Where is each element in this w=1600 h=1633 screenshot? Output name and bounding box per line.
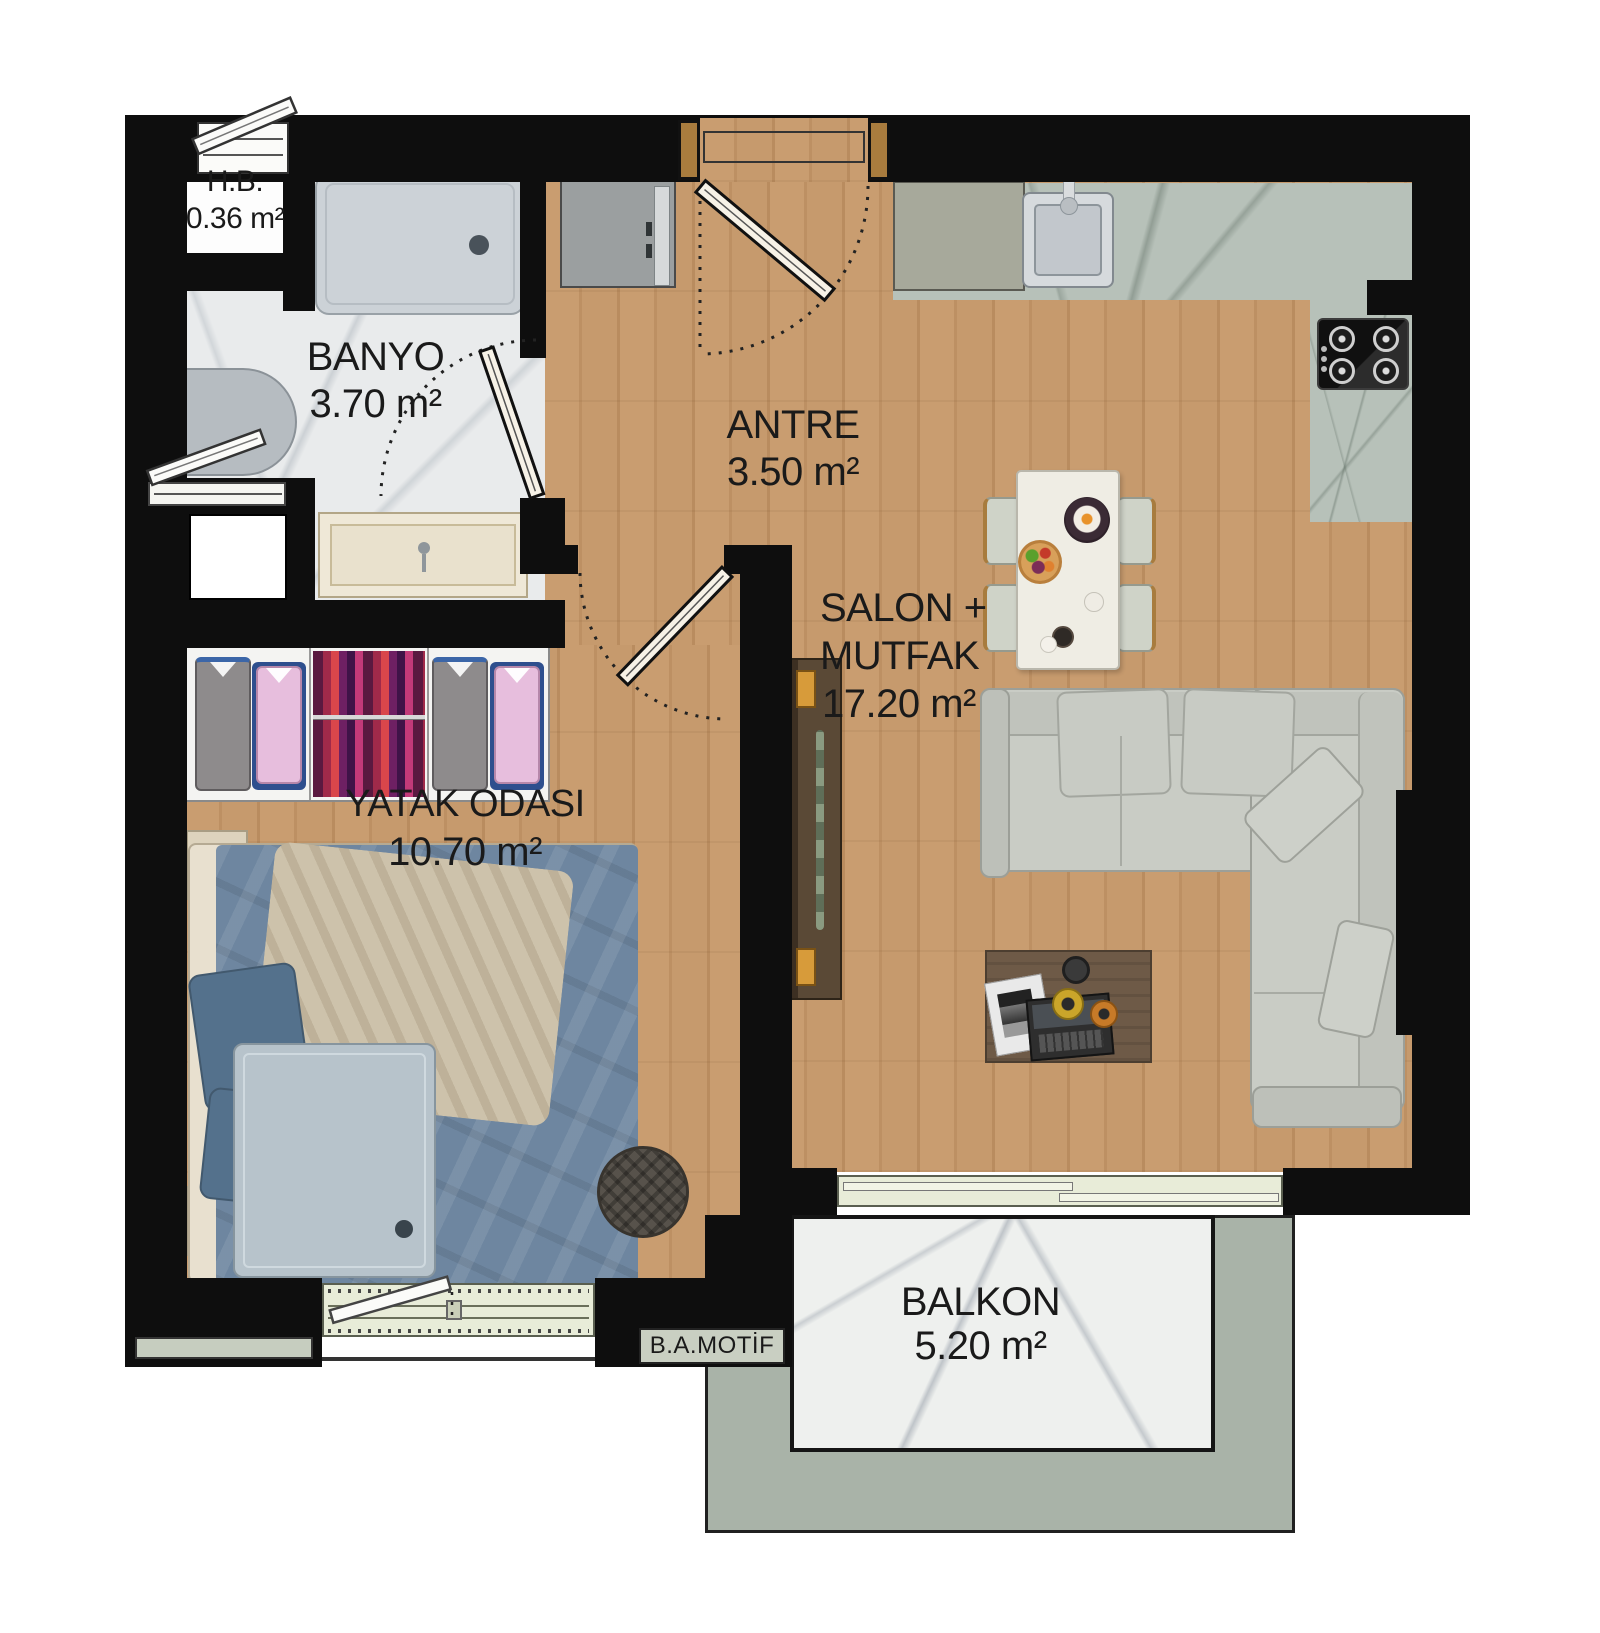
room-label-balkon-area: 5.20 m² (888, 1324, 1073, 1368)
room-label-hb-name: H.B. (168, 165, 302, 198)
room-label-antre-area: 3.50 m² (698, 450, 888, 494)
room-label-yatak-name: YATAK ODASI (325, 784, 605, 826)
room-label-banyo-area: 3.70 m² (288, 382, 463, 426)
door-symbols-layer (0, 0, 1600, 1633)
stamp-box: B.A.MOTİF (639, 1328, 785, 1364)
entrance-door-closed-slab (704, 132, 864, 162)
room-label-balkon-name: BALKON (888, 1280, 1073, 1324)
room-label-salon-name2: MUTFAK (820, 634, 1040, 678)
room-label-salon-area: 17.20 m² (822, 682, 1042, 726)
room-label-salon-name: SALON + (820, 586, 1040, 630)
bedroom-window-leaf (330, 1277, 451, 1323)
room-label-yatak-area: 10.70 m² (325, 830, 605, 874)
stamp-label: B.A.MOTİF (650, 1332, 775, 1360)
room-label-hb-area: 0.36 m² (168, 202, 302, 235)
room-label-banyo-name: BANYO (288, 335, 463, 379)
room-label-antre-name: ANTRE (698, 403, 888, 447)
floor-plan: H.B. 0.36 m² BANYO 3.70 m² ANTRE 3.50 m²… (0, 0, 1600, 1633)
